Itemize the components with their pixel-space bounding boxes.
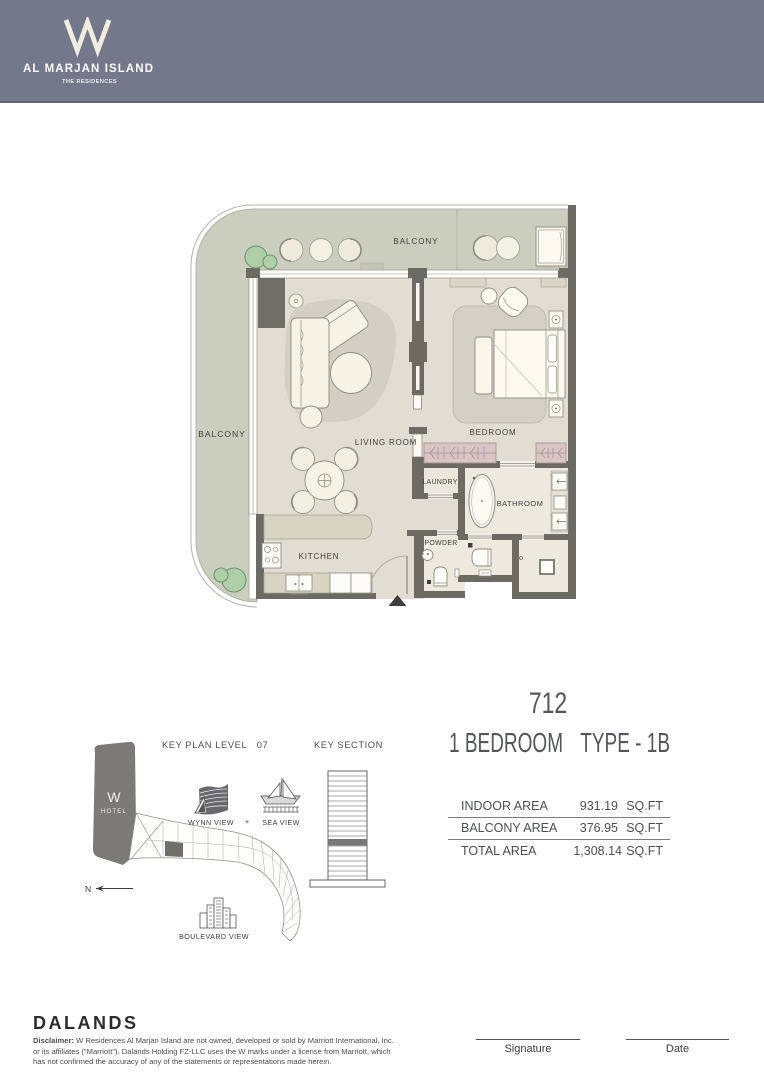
svg-text:HOTEL: HOTEL — [101, 809, 127, 815]
svg-text:BEDROOM: BEDROOM — [470, 428, 517, 437]
svg-text:BALCONY: BALCONY — [198, 429, 246, 439]
svg-text:KEY SECTION: KEY SECTION — [314, 740, 383, 750]
svg-text:+: + — [245, 817, 249, 826]
svg-text:KEY PLAN LEVEL 07: KEY PLAN LEVEL 07 — [162, 740, 268, 750]
svg-text:WYNN VIEW: WYNN VIEW — [188, 818, 234, 827]
svg-text:SEA VIEW: SEA VIEW — [262, 818, 300, 827]
svg-text:BATHROOM: BATHROOM — [497, 499, 544, 508]
svg-text:KITCHEN: KITCHEN — [299, 552, 340, 561]
svg-text:W: W — [107, 789, 121, 805]
svg-text:BOULEVARD VIEW: BOULEVARD VIEW — [179, 932, 249, 941]
svg-text:POWDER: POWDER — [424, 540, 457, 547]
svg-text:BALCONY: BALCONY — [393, 237, 438, 246]
svg-text:N: N — [85, 884, 91, 894]
svg-text:LIVING ROOM: LIVING ROOM — [355, 438, 417, 447]
svg-text:LAUNDRY: LAUNDRY — [422, 479, 457, 486]
